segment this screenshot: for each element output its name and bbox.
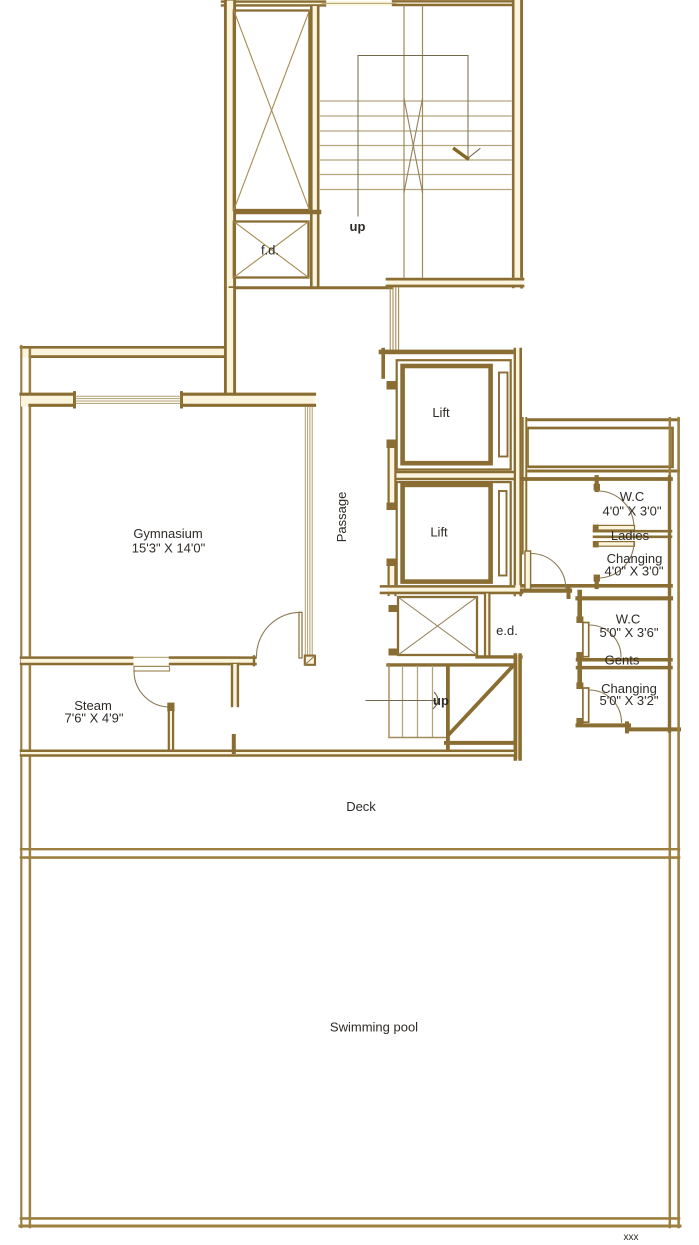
svg-text:Gymnasium: Gymnasium (133, 526, 202, 541)
svg-text:Ladies: Ladies (611, 528, 650, 543)
svg-text:e.d.: e.d. (496, 623, 518, 638)
svg-text:W.C: W.C (620, 489, 645, 504)
svg-text:Passage: Passage (334, 492, 349, 543)
svg-text:5'0" X 3'2": 5'0" X 3'2" (599, 693, 658, 708)
svg-text:4'0" X 3'0": 4'0" X 3'0" (604, 564, 663, 579)
svg-text:Swimming pool: Swimming pool (330, 1020, 418, 1035)
svg-text:xxx: xxx (624, 1232, 639, 1240)
svg-text:up: up (433, 693, 449, 708)
svg-text:15'3" X 14'0": 15'3" X 14'0" (132, 541, 206, 556)
svg-text:f.d.: f.d. (261, 243, 279, 258)
svg-text:Lift: Lift (432, 405, 450, 420)
svg-text:4'0" X 3'0": 4'0" X 3'0" (602, 504, 661, 519)
svg-text:Gents: Gents (605, 653, 640, 668)
svg-text:up: up (350, 219, 366, 234)
svg-text:5'0" X 3'6": 5'0" X 3'6" (599, 625, 658, 640)
svg-text:7'6" X 4'9": 7'6" X 4'9" (64, 711, 123, 726)
svg-text:Deck: Deck (346, 799, 376, 814)
svg-text:Lift: Lift (430, 525, 448, 540)
